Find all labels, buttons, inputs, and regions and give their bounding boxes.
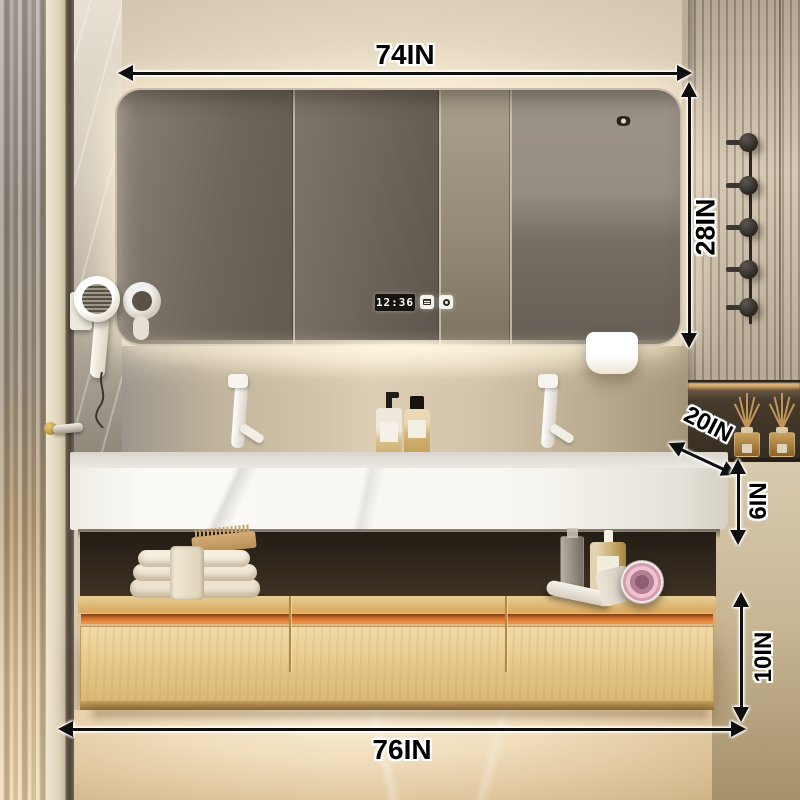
dryer-handle	[89, 315, 109, 378]
dimension-label-width-top: 74IN	[375, 39, 434, 71]
slat-panel-edge	[779, 0, 781, 380]
dimension-arrow-width-top	[132, 72, 678, 75]
reed-diffuser	[767, 393, 797, 457]
pink-hair-dryer	[546, 558, 662, 610]
door-handle-lever	[53, 422, 84, 434]
faucet-body	[231, 384, 248, 449]
dimension-label-drawer-height: 10IN	[750, 632, 778, 683]
cabinet-drawers	[80, 626, 714, 702]
glass-door	[0, 0, 46, 800]
towel-stack	[130, 542, 262, 606]
dimension-label-counter-thickness: 6IN	[745, 482, 773, 519]
niche-led-light	[688, 383, 800, 389]
mirror-cabinet: 12:36	[115, 88, 682, 346]
wall-hook	[726, 218, 762, 238]
wall-hook	[726, 176, 762, 196]
dimension-label-mirror-height: 28IN	[691, 198, 722, 255]
faucet	[536, 374, 582, 460]
door-frame	[46, 0, 66, 800]
dryer-head	[74, 276, 120, 322]
wall-hook	[726, 133, 762, 153]
door-handle	[42, 414, 84, 444]
dryer-grille	[82, 284, 112, 314]
dimension-arrow-drawer-height	[740, 606, 743, 708]
wall-hook	[726, 298, 762, 318]
drawer-seam	[505, 596, 507, 672]
dryer-cable	[88, 372, 118, 428]
bathroom-vanity-product-photo: 12:36	[0, 0, 800, 800]
wall-hook	[726, 260, 762, 280]
dimension-arrow-width-bottom	[72, 728, 732, 731]
towel-strap	[170, 546, 204, 600]
faucet	[226, 374, 272, 460]
dimension-arrow-counter-thickness	[737, 473, 740, 531]
faucet-handle	[228, 374, 248, 388]
under-cabinet-shadow	[92, 708, 708, 718]
hanging-towel	[586, 332, 638, 374]
faucet-handle	[538, 374, 558, 388]
faucet-body	[541, 384, 558, 449]
countertop-front	[70, 468, 728, 530]
mirror-shading	[117, 90, 680, 344]
wall-hair-dryer	[70, 270, 134, 420]
cabinet-led-strip	[81, 614, 713, 624]
dimension-label-width-bottom: 76IN	[372, 734, 431, 766]
drawer-seam	[289, 596, 291, 672]
